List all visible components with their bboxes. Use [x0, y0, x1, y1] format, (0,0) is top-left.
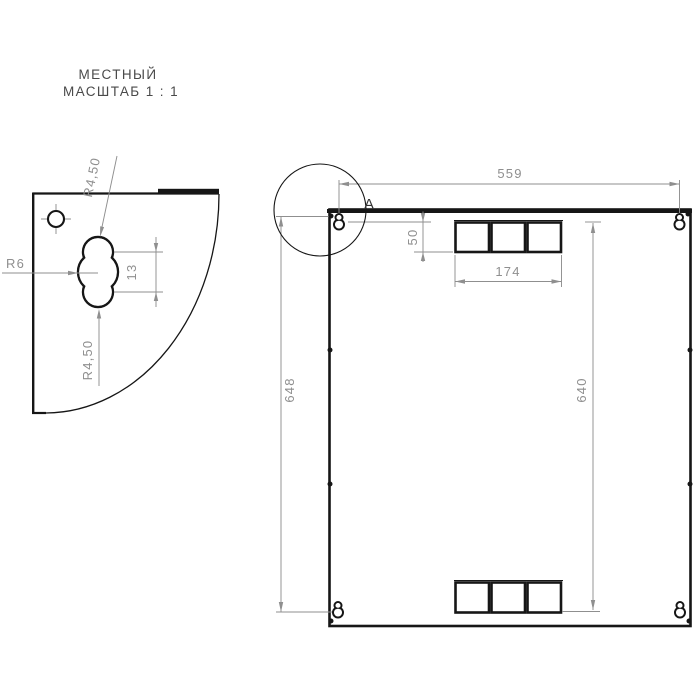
- mounting-hole-bottom-left: [329, 619, 334, 624]
- arrow-left: [339, 182, 349, 186]
- arrow-right: [670, 182, 680, 186]
- dim-text-r6: R6: [6, 256, 25, 271]
- technical-drawing-canvas: МЕСТНЫЙ МАСШТАБ 1 : 1 R4,50: [0, 0, 700, 700]
- vent-grid-bottom: [454, 581, 563, 613]
- mounting-hole-top-left: [329, 214, 334, 219]
- keyhole-slot-bottom-left: [333, 602, 343, 618]
- drawing-title: МЕСТНЫЙ МАСШТАБ 1 : 1: [63, 67, 179, 99]
- dim-left-height: 648: [276, 217, 334, 613]
- mounting-hole-left-upper: [328, 348, 333, 353]
- mounting-hole-right-upper: [688, 348, 693, 353]
- arrow-bottom: [154, 292, 158, 301]
- keyhole-slot-bottom-right: [675, 602, 685, 618]
- arrow-top: [154, 243, 158, 252]
- dim-text-left-height: 648: [282, 377, 297, 402]
- dim-slot-radius-bottom: R4,50: [80, 309, 101, 386]
- dim-slot-spacing: 13: [114, 237, 163, 307]
- dim-text-vent-offset: 50: [405, 229, 420, 246]
- arrow-top: [279, 217, 283, 227]
- corner-round-hole: [41, 204, 71, 234]
- main-panel-view: 559 50 174 648: [274, 164, 693, 626]
- dim-text-radius-bottom: R4,50: [80, 340, 95, 381]
- leader-arrow: [97, 309, 101, 319]
- local-break-arc: [46, 194, 219, 413]
- mounting-hole-bottom-right: [687, 619, 692, 624]
- local-top-flange-edge: [158, 189, 219, 194]
- mounting-hole-top-right: [686, 212, 691, 217]
- vent-cutout: [492, 223, 526, 253]
- vent-cutout: [492, 583, 526, 613]
- mounting-hole-left-lower: [328, 482, 333, 487]
- detail-view-label: A: [364, 196, 375, 213]
- leader-line: [101, 156, 118, 234]
- keyhole-slot-detail: [78, 237, 118, 307]
- drawing-svg: МЕСТНЫЙ МАСШТАБ 1 : 1 R4,50: [0, 0, 700, 700]
- dim-text-spacing: 13: [124, 264, 139, 281]
- vent-cutout: [456, 223, 490, 253]
- dim-text-radius-top: R4,50: [80, 156, 103, 199]
- title-line-2: МАСШТАБ 1 : 1: [63, 84, 179, 99]
- keyhole-slot-top-right: [675, 214, 685, 230]
- local-detail-view: R4,50 R6 13 R4,50: [2, 156, 219, 414]
- dim-text-vent-width: 174: [495, 264, 520, 279]
- vent-cutout: [456, 583, 490, 613]
- title-line-1: МЕСТНЫЙ: [78, 67, 157, 82]
- keyhole-slot-top-left: [334, 214, 344, 230]
- dim-text-top-width: 559: [497, 166, 522, 181]
- dim-text-right-height: 640: [574, 377, 589, 402]
- vent-cutout: [528, 583, 562, 613]
- vent-grid-top: [454, 221, 563, 253]
- leader-arrow: [100, 226, 104, 237]
- mounting-hole-right-lower: [688, 482, 693, 487]
- dim-slot-radius-top: R4,50: [80, 156, 117, 237]
- slot-center-fill: [79, 253, 117, 291]
- vent-cutout: [528, 223, 562, 253]
- dim-top-width: 559: [339, 166, 680, 213]
- leader-arrow: [68, 271, 78, 276]
- arrow-bottom: [279, 602, 283, 612]
- round-hole-outline: [48, 211, 64, 227]
